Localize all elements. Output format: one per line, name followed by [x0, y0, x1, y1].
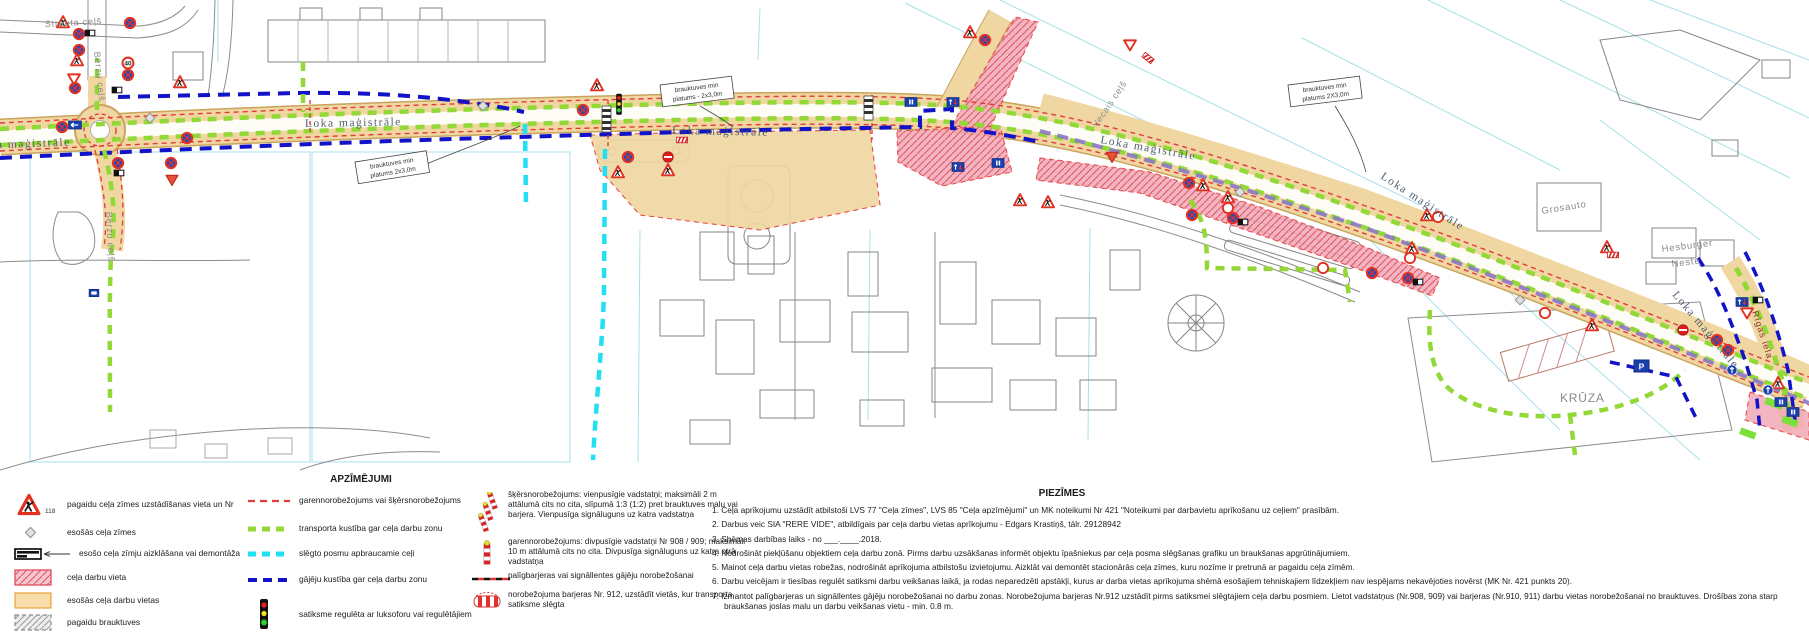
covered-sign-icon [85, 30, 95, 36]
map-labels: Strauta ceļš Bērzu ceļš Bērzu ceļš Loka … [0, 16, 1775, 405]
road-works-sign-icon [964, 26, 976, 37]
place-label-hesburger: Hesburger [1661, 238, 1714, 255]
no-stopping-sign-icon [1187, 210, 1197, 220]
bus-stop-sign-icon [89, 289, 99, 296]
legend-row: pagaidu brauktuves [14, 614, 245, 632]
sign-number: 118 [45, 508, 56, 515]
detour-route-long [593, 149, 605, 460]
no-entry-sign-icon [663, 152, 674, 163]
no-stopping-sign-icon [623, 152, 633, 162]
info-sign-icon [1787, 408, 1799, 417]
no-stopping-sign-icon [74, 45, 84, 55]
no-stopping-sign-icon [1403, 273, 1413, 283]
legend-label: gājēju kustība gar ceļa darbu zonu [299, 575, 481, 585]
barrier-912-icon [1607, 252, 1618, 258]
no-stopping-sign-icon [57, 122, 67, 132]
legend-label: satiksme regulēta ar luksoforu vai regul… [299, 610, 481, 620]
covered-sign-icon [1413, 279, 1423, 285]
legend-label: pagaidu ceļa zīmes uzstādīšanas vieta un… [67, 500, 245, 510]
restriction-sign-icon [1223, 203, 1233, 213]
tan-road-band [0, 16, 1809, 430]
covered-sign-icon [1238, 219, 1248, 225]
road-label-loka-3: Loka maģistrāle [672, 125, 769, 139]
note-item: 1. Ceļa aprīkojumu uzstādīt atbilstoši L… [712, 505, 1797, 516]
speed-limit-value: 40 [124, 61, 132, 68]
info-sign-icon [992, 159, 1004, 168]
delineator-post-icon [478, 538, 498, 568]
note-item: 6. Darbu veicējam ir tiesības regulēt sa… [712, 576, 1797, 587]
place-label-neste: Neste [1671, 256, 1701, 270]
legend-row: slēgto posmu apbraucamie ceļi [246, 548, 481, 560]
barrier-912-icon [1142, 52, 1154, 63]
street-label-strauta: Strauta ceļš [45, 16, 103, 29]
barrier-line-icon [246, 495, 292, 507]
temporary-sign-location-icon: 118 [14, 491, 60, 519]
mandatory-direction-sign-icon [1763, 385, 1773, 395]
transport-route-icon [246, 523, 292, 535]
work-zone-swatch [14, 569, 60, 587]
restriction-sign-icon [1540, 308, 1550, 318]
no-stopping-sign-icon [578, 105, 588, 115]
legend-label: transporta kustība gar ceļa darbu zonu [299, 524, 481, 534]
note-item: 2. Darbus veic SIA "RERE VIDE", atbildīg… [712, 519, 1797, 530]
legend-row: esošās ceļa zīmes [14, 524, 245, 542]
covered-sign-icon [112, 87, 122, 93]
notes-panel: PIEZĪMES 1. Ceļa aprīkojumu uzstādīt atb… [712, 488, 1797, 616]
parking-sign-label: P [1639, 362, 1645, 372]
legend-label: garennorobežojums vai šķērsnorobežojums [299, 496, 481, 506]
priority-sign-icon [947, 98, 959, 107]
restriction-sign-icon [1318, 263, 1328, 273]
delineator-post-icon [474, 492, 504, 534]
existing-sign-icon [14, 524, 60, 542]
traffic-signs: 40 P [57, 16, 1799, 416]
no-stopping-sign-icon [125, 18, 135, 28]
traffic-scheme-page: 40 P Strauta ceļš Bērzu ceļš Bērzu ceļš … [0, 0, 1809, 637]
street-label-berzu-south: Bērzu ceļš [104, 212, 117, 262]
no-stopping-sign-icon [980, 35, 990, 45]
legend-row: ceļa darbu vieta [14, 569, 245, 587]
priority-sign-icon [952, 163, 964, 172]
temporary-roadway-swatch [14, 614, 60, 632]
note-item: 3. Shēmas darbības laiks - no ___.____.2… [712, 534, 1797, 545]
traffic-light-icon [616, 94, 622, 115]
note-item: 4. Nodrošināt piekļūšanu objektiem ceļa … [712, 548, 1797, 559]
detour-route-icon [246, 548, 292, 560]
road-works-sign-icon [1042, 196, 1054, 207]
no-stopping-sign-icon [74, 29, 84, 39]
legend-row: 118 pagaidu ceļa zīmes uzstādīšanas viet… [14, 491, 245, 519]
legend-row: garennorobežojums vai šķērsnorobežojums [246, 495, 481, 507]
legend-title: APZĪMĒJUMI [296, 474, 426, 485]
existing-work-zone-swatch [14, 592, 60, 610]
no-stopping-sign-icon [182, 133, 192, 143]
road-works-sign-icon [1014, 194, 1026, 205]
legend-label: slēgto posmu apbraucamie ceļi [299, 549, 481, 559]
no-entry-sign-icon [1678, 325, 1689, 336]
info-sign-icon [1775, 398, 1787, 407]
pedestrian-route-icon [246, 574, 292, 586]
note-item: 5. Mainot ceļa darbu vietas robežas, nod… [712, 562, 1797, 573]
restriction-sign-icon [1405, 253, 1415, 263]
legend-label: ceļa darbu vieta [67, 573, 245, 583]
speed-limit-sign-icon: 40 [123, 58, 134, 69]
legend-label: esošās ceļa zīmes [67, 528, 245, 538]
legend-row: satiksme regulēta ar luksoforu vai regul… [246, 596, 481, 634]
legend-row: esošās ceļa darbu vietas [14, 592, 245, 610]
no-stopping-sign-icon [113, 158, 123, 168]
place-label-kruza: KRŪZA [1560, 391, 1605, 405]
give-way-sign-icon [1124, 40, 1136, 50]
covered-sign-icon [14, 546, 72, 562]
note-item: 7. Izmantot palīgbarjeras un signāllente… [712, 591, 1797, 613]
no-stopping-sign-icon [123, 70, 133, 80]
priority-sign-icon [1736, 298, 1748, 307]
covered-sign-icon [114, 170, 124, 176]
give-way-sign-icon [166, 175, 178, 185]
covered-sign-icon [1753, 297, 1763, 303]
parking-sign-icon: P [1634, 360, 1649, 372]
road-label-loka-2: Loka maģistrāle [305, 116, 402, 130]
legend-label: pagaidu brauktuves [67, 618, 245, 628]
legend-row: gājēju kustība gar ceļa darbu zonu [246, 574, 481, 586]
barrier-912-icon [676, 137, 687, 143]
no-stopping-sign-icon [1184, 178, 1194, 188]
notes-title: PIEZĪMES [712, 488, 1412, 499]
legend-row: transporta kustība gar ceļa darbu zonu [246, 523, 481, 535]
road-works-sign-icon [174, 76, 186, 87]
info-sign-icon [905, 98, 917, 107]
road-works-sign-icon [1601, 241, 1613, 252]
callout-roadway-width-3: brauktuves min platums 2X3,0m [1288, 76, 1362, 107]
no-stopping-sign-icon [1228, 213, 1238, 223]
road-works-sign-icon [591, 79, 603, 90]
legend-label: esošās ceļa darbu vietas [67, 596, 245, 606]
legend-label: esošo ceļa zīmju aizklāšana vai demontāž… [79, 549, 251, 559]
barrier-912-icon [472, 590, 504, 610]
legend-row: esošo ceļa zīmju aizklāšana vai demontāž… [14, 546, 251, 562]
no-stopping-sign-icon [166, 158, 176, 168]
place-label-grosauto: Grosauto [1541, 199, 1588, 217]
no-stopping-sign-icon [1367, 268, 1377, 278]
direction-sign-icon [69, 121, 82, 129]
traffic-light-icon [246, 596, 292, 634]
signal-tape-icon [470, 574, 512, 584]
callout-roadway-width-1: brauktuves min platums 2x3,0m [355, 151, 430, 184]
